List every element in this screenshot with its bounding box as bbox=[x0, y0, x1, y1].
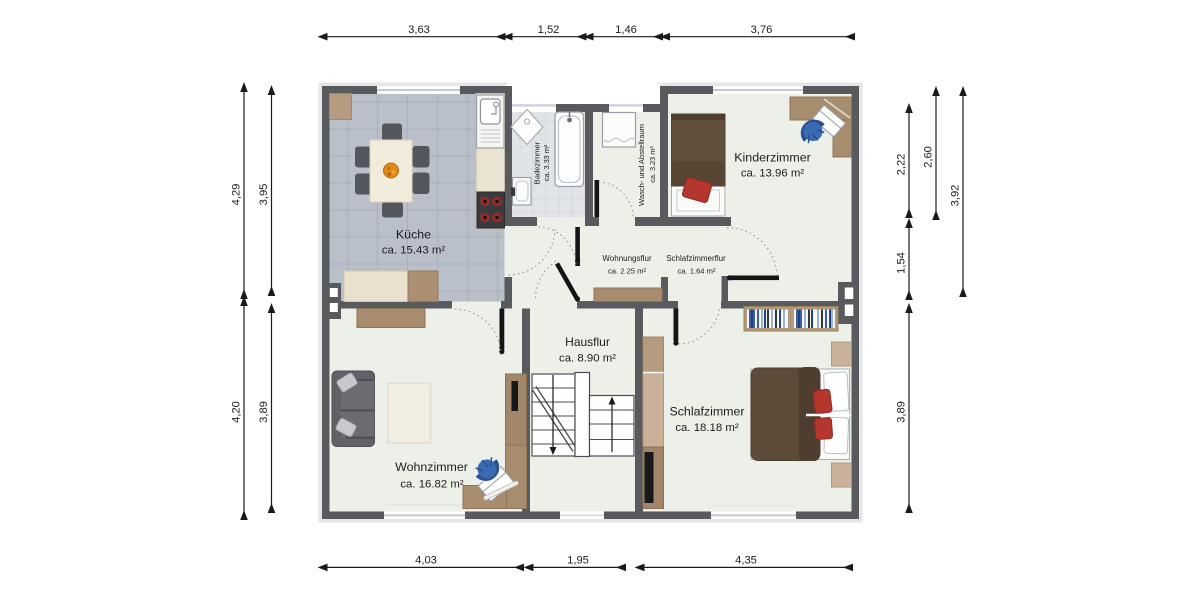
svg-text:Badezimmer: Badezimmer bbox=[533, 141, 542, 184]
svg-text:2,60: 2,60 bbox=[923, 146, 935, 168]
svg-text:1,46: 1,46 bbox=[615, 24, 637, 36]
svg-text:3,76: 3,76 bbox=[751, 24, 773, 36]
svg-text:Wohnzimmer: Wohnzimmer bbox=[395, 460, 468, 474]
svg-text:Küche: Küche bbox=[396, 228, 431, 242]
svg-text:Schlafzimmer: Schlafzimmer bbox=[669, 405, 744, 419]
svg-text:ca. 8.90 m²: ca. 8.90 m² bbox=[559, 353, 616, 365]
svg-text:ca. 2.25 m²: ca. 2.25 m² bbox=[608, 267, 646, 276]
svg-text:Hausflur: Hausflur bbox=[565, 335, 610, 349]
svg-text:ca. 1.64 m²: ca. 1.64 m² bbox=[678, 267, 716, 276]
svg-text:3,92: 3,92 bbox=[950, 185, 962, 207]
svg-text:ca. 13.96 m²: ca. 13.96 m² bbox=[741, 168, 805, 180]
svg-text:1,54: 1,54 bbox=[896, 252, 908, 274]
svg-text:4,29: 4,29 bbox=[231, 184, 243, 206]
svg-text:3,89: 3,89 bbox=[258, 401, 270, 423]
svg-text:ca. 3.33 m²: ca. 3.33 m² bbox=[542, 144, 551, 181]
svg-text:1,52: 1,52 bbox=[538, 24, 560, 36]
svg-text:ca. 16.82 m²: ca. 16.82 m² bbox=[400, 479, 464, 491]
svg-text:Wohnungsflur: Wohnungsflur bbox=[602, 254, 652, 263]
svg-text:4,20: 4,20 bbox=[231, 401, 243, 423]
svg-text:3,95: 3,95 bbox=[258, 184, 270, 206]
svg-text:ca. 15.43 m²: ca. 15.43 m² bbox=[382, 245, 446, 257]
svg-text:Wasch- und Abstellraum: Wasch- und Abstellraum bbox=[637, 124, 646, 206]
svg-text:ca. 3.23 m²: ca. 3.23 m² bbox=[648, 146, 657, 183]
svg-text:2,22: 2,22 bbox=[896, 154, 908, 176]
svg-text:3,89: 3,89 bbox=[896, 401, 908, 423]
svg-text:1,95: 1,95 bbox=[567, 555, 589, 567]
svg-text:ca. 18.18 m²: ca. 18.18 m² bbox=[675, 422, 739, 434]
svg-text:4,03: 4,03 bbox=[415, 555, 437, 567]
svg-text:4,35: 4,35 bbox=[735, 555, 757, 567]
svg-text:3,63: 3,63 bbox=[408, 24, 430, 36]
svg-text:Kinderzimmer: Kinderzimmer bbox=[734, 151, 810, 165]
svg-text:Schlafzimmerflur: Schlafzimmerflur bbox=[666, 254, 726, 263]
